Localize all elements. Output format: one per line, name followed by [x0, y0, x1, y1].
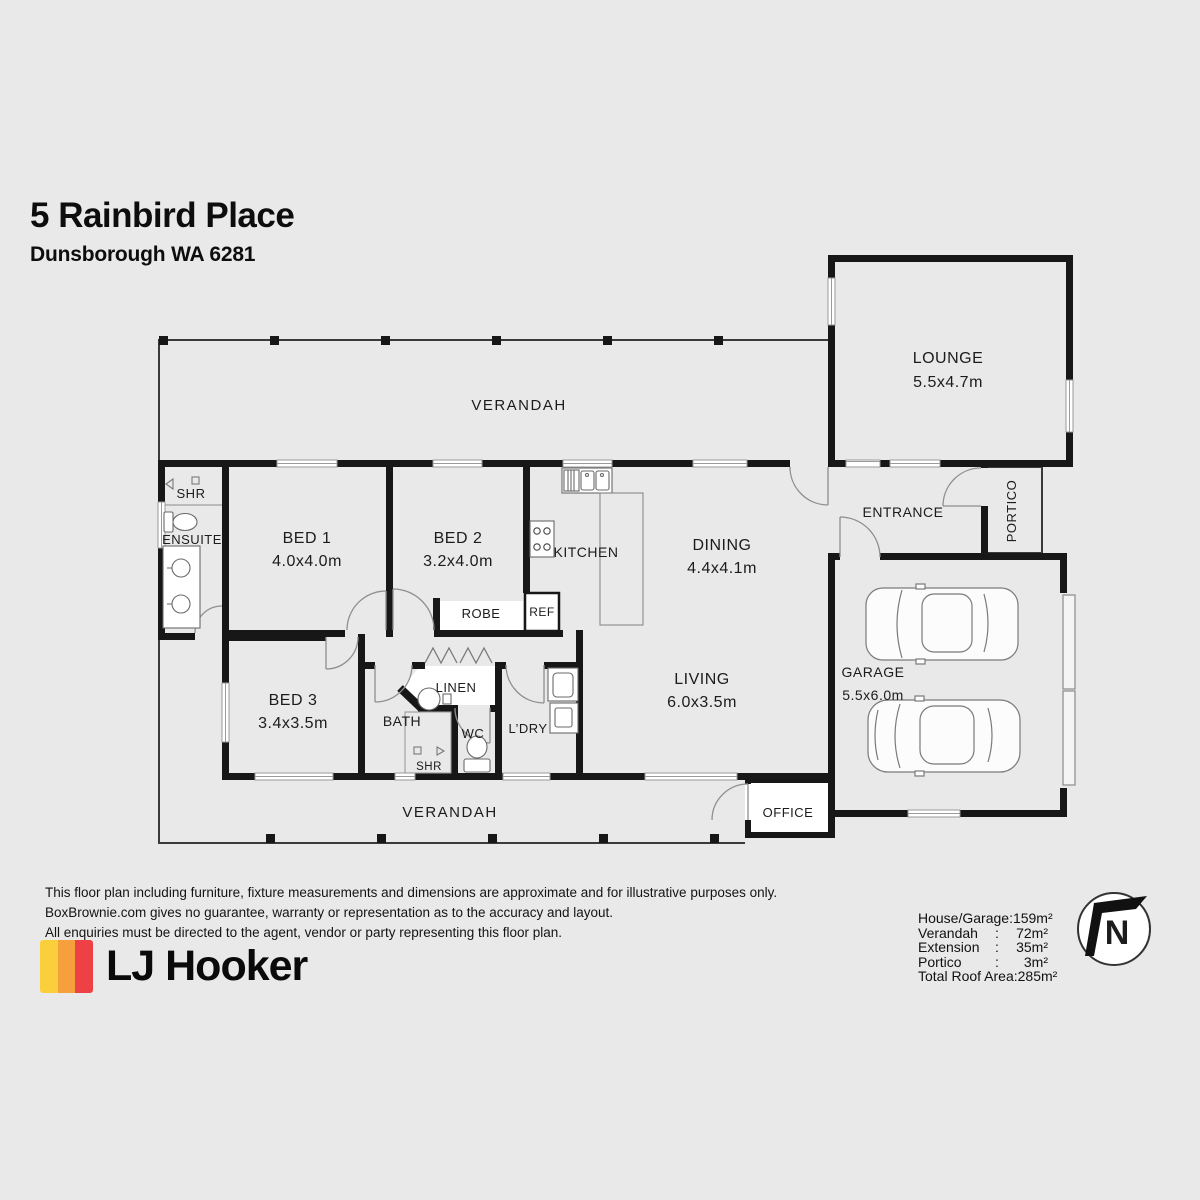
area-row: Total Roof Area : 285m²	[918, 969, 1048, 984]
room-label-ref: REF	[529, 605, 555, 619]
room-label-ensuite-shr: SHR	[177, 486, 206, 501]
area-label: Portico	[918, 955, 992, 970]
disclaimer-line-2: BoxBrownie.com gives no guarantee, warra…	[45, 903, 825, 923]
area-row: House/Garage : 159m²	[918, 911, 1048, 926]
car-bottom	[868, 696, 1020, 776]
area-label: Total Roof Area	[918, 969, 1014, 984]
disclaimer: This floor plan including furniture, fix…	[45, 883, 825, 943]
area-summary-table: House/Garage : 159m² Verandah : 72m² Ext…	[918, 911, 1048, 984]
room-label-linen: LINEN	[436, 680, 477, 695]
room-label-dining: DINING	[693, 537, 752, 554]
area-value: 285m²	[1018, 969, 1058, 984]
room-label-lounge: LOUNGE	[913, 350, 984, 367]
garage-door	[1063, 595, 1075, 785]
area-separator: :	[992, 940, 1002, 955]
room-label-entrance: ENTRANCE	[862, 504, 943, 520]
area-separator: :	[992, 955, 1002, 970]
room-dims-bed3: 3.4x3.5m	[258, 715, 328, 732]
room-label-garage: GARAGE	[842, 664, 905, 680]
room-label-bed2: BED 2	[434, 530, 483, 547]
room-dims-bed1: 4.0x4.0m	[272, 553, 342, 570]
area-value: 35m²	[1002, 940, 1048, 955]
north-compass: N	[1078, 893, 1150, 965]
area-separator: :	[992, 926, 1002, 941]
room-label-wc: WC	[462, 726, 485, 741]
area-value: 159m²	[1013, 911, 1053, 926]
room-label-bath: BATH	[383, 713, 421, 729]
area-label: House/Garage	[918, 911, 1009, 926]
room-label-ensuite: ENSUITE	[162, 532, 222, 547]
room-label-verandah-top: VERANDAH	[471, 397, 566, 414]
car-top	[866, 584, 1018, 664]
room-dims-living: 6.0x3.5m	[667, 694, 737, 711]
room-label-office: OFFICE	[763, 805, 814, 820]
room-dims-dining: 4.4x4.1m	[687, 560, 757, 577]
lj-hooker-logo-icon	[40, 940, 93, 993]
room-dims-garage: 5.5x6.0m	[842, 687, 904, 703]
room-dims-lounge: 5.5x4.7m	[913, 374, 983, 391]
logo-stripe-orange	[58, 940, 76, 993]
area-row: Portico : 3m²	[918, 955, 1048, 970]
room-label-verandah-bottom: VERANDAH	[402, 804, 497, 821]
room-label-bed3: BED 3	[269, 692, 318, 709]
logo-stripe-red	[75, 940, 93, 993]
room-label-bed1: BED 1	[283, 530, 332, 547]
logo-stripe-yellow	[40, 940, 58, 993]
disclaimer-line-1: This floor plan including furniture, fix…	[45, 883, 825, 903]
floorplan-canvas: VERANDAH LOUNGE 5.5x4.7m SHR ENSUITE BED…	[0, 0, 1200, 1200]
area-row: Verandah : 72m²	[918, 926, 1048, 941]
room-label-laundry: L’DRY	[508, 721, 547, 736]
area-label: Extension	[918, 940, 992, 955]
bifold-doors	[425, 648, 492, 663]
laundry-fixtures	[548, 668, 578, 733]
room-label-portico: PORTICO	[1004, 480, 1019, 543]
room-label-living: LIVING	[674, 671, 729, 688]
room-dims-bed2: 3.2x4.0m	[423, 553, 493, 570]
area-value: 72m²	[1002, 926, 1048, 941]
garage-cars	[866, 584, 1020, 776]
area-value: 3m²	[1002, 955, 1048, 970]
north-label: N	[1105, 914, 1130, 952]
room-label-bath-shr: SHR	[416, 761, 442, 773]
area-label: Verandah	[918, 926, 992, 941]
room-label-kitchen: KITCHEN	[554, 544, 619, 560]
agency-name: LJ Hooker	[106, 942, 307, 991]
floorplan-page: 5 Rainbird Place Dunsborough WA 6281	[0, 0, 1200, 1200]
room-label-robe: ROBE	[462, 606, 501, 621]
agency-brand: LJ Hooker	[40, 940, 307, 993]
area-row: Extension : 35m²	[918, 940, 1048, 955]
